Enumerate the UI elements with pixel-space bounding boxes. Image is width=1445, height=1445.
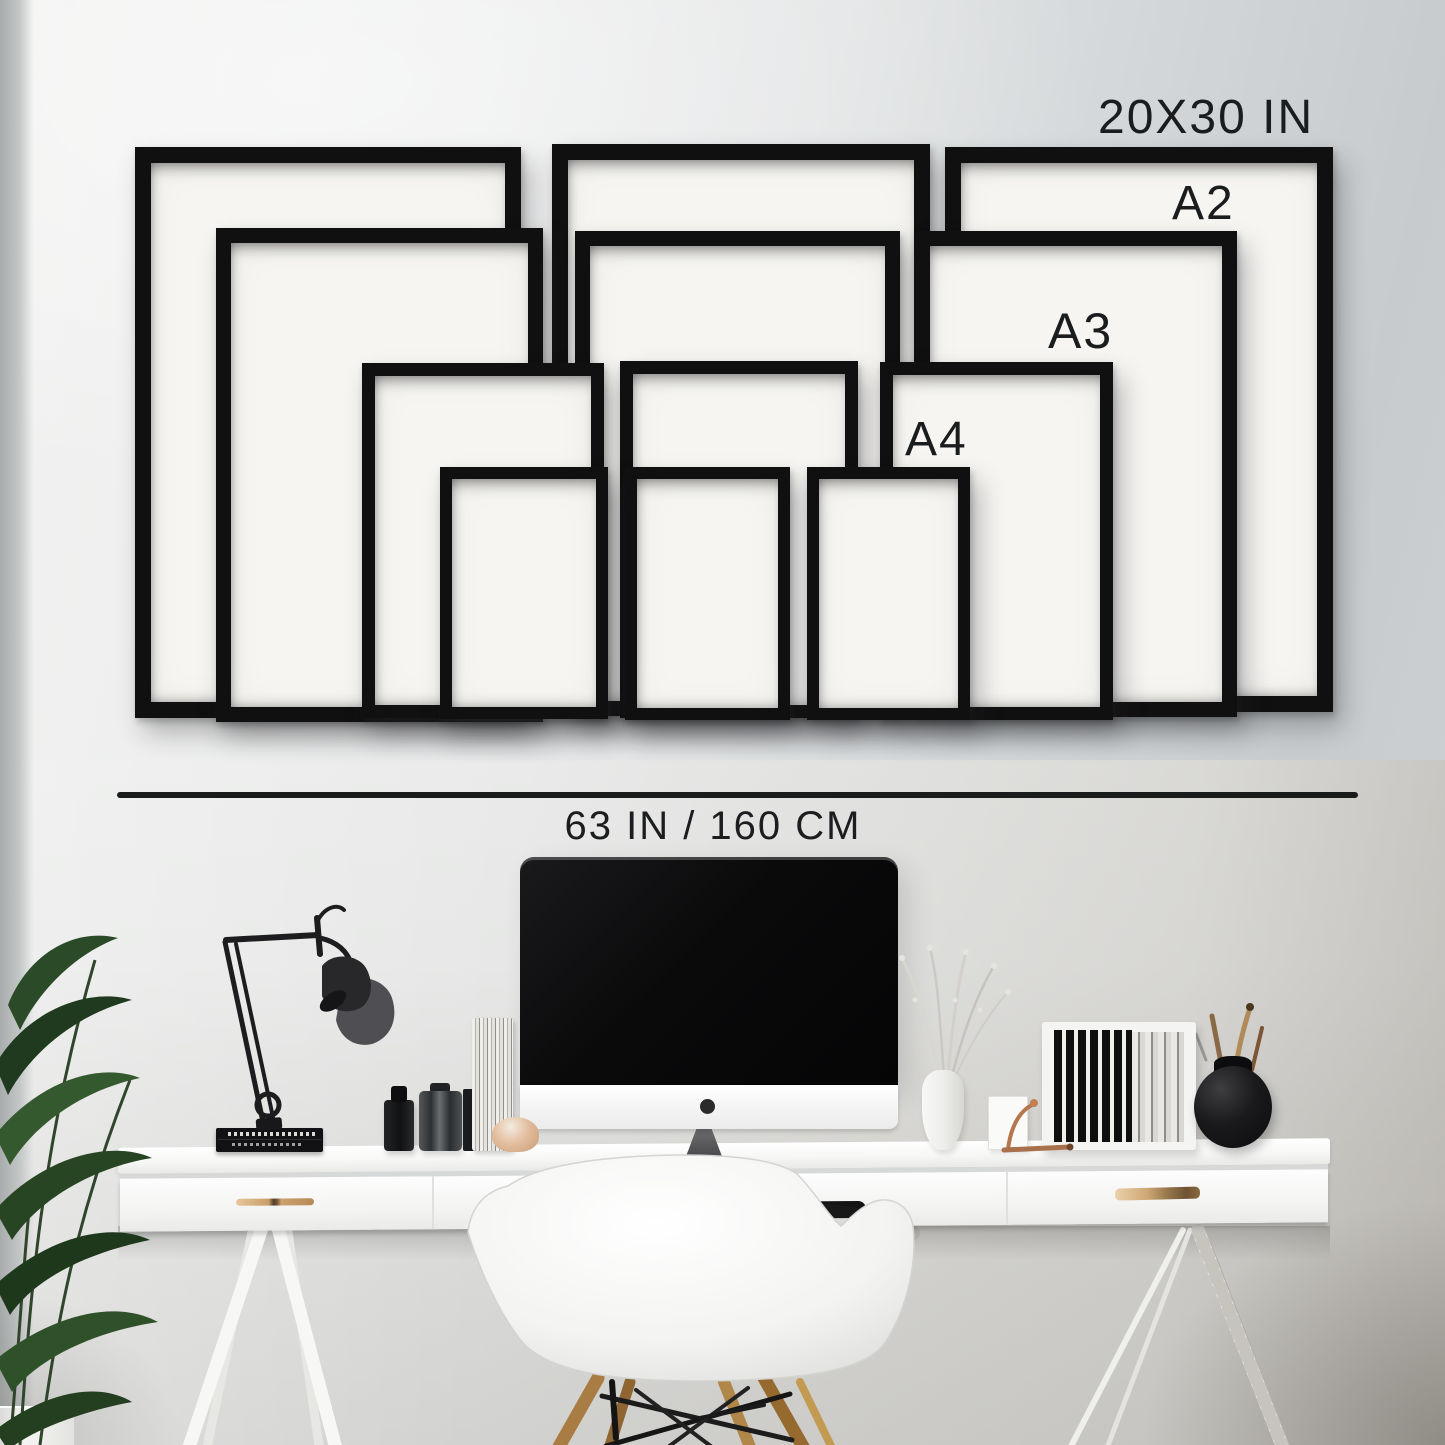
potted-plant [0, 0, 1445, 1445]
scene: 20X30 IN A2 A3 A4 63 IN / 160 CM [0, 0, 1445, 1445]
